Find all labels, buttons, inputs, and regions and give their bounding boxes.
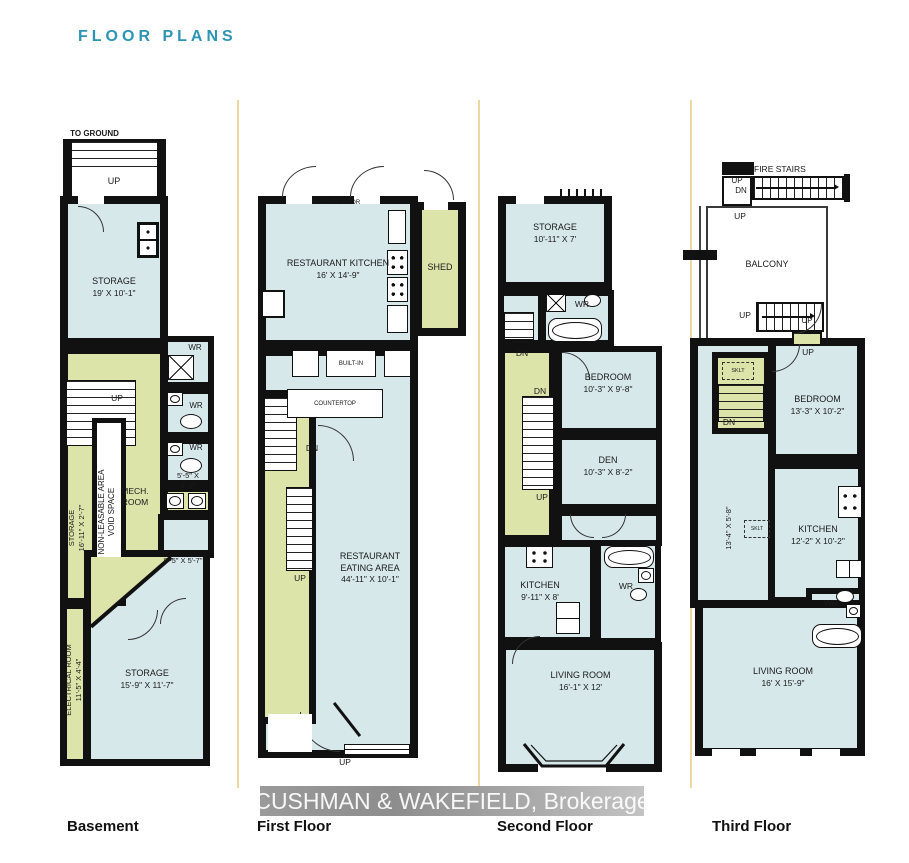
bathtub-icon	[604, 546, 654, 568]
up-door-label: UP	[794, 316, 820, 326]
stairs-arrow	[756, 187, 834, 189]
floor-plans-sheet: FLOOR PLANS TO GROUND UP STORAGE 19' X 1…	[0, 0, 909, 863]
door-gap	[424, 202, 448, 210]
entry-up-label: UP	[332, 757, 358, 768]
stove-icon	[526, 546, 553, 568]
dims-line: 9'-11" X 8'	[504, 592, 576, 603]
door-arc-icon	[350, 166, 384, 197]
window-gap	[516, 196, 544, 204]
stairs-icon	[504, 312, 534, 340]
page-title: FLOOR PLANS	[78, 28, 237, 46]
name-line: RESTAURANT KITCHEN	[278, 258, 398, 270]
balcony-outer-wall	[699, 206, 701, 346]
window-icon	[261, 290, 285, 318]
name-line: RESTAURANT	[322, 551, 418, 563]
door-arc-icon	[282, 166, 316, 197]
dims-line: 16'-11" X 2'-7"	[77, 453, 87, 603]
counter-icon	[836, 560, 862, 578]
balcony-label: BALCONY	[726, 259, 808, 271]
entry-recess	[268, 714, 312, 752]
wr-label: WR	[568, 299, 596, 310]
column-separator-1	[237, 100, 239, 788]
built-in-cabinet: BUILT-IN	[326, 350, 376, 377]
dims-line: 10'-11" X 7'	[505, 234, 605, 245]
shower-icon	[168, 355, 194, 380]
name-line: STORAGE	[64, 276, 164, 288]
dims-line: 16'-1" X 12'	[528, 682, 633, 693]
wr-label: WR	[182, 401, 210, 411]
arrow-head-icon	[834, 184, 839, 190]
dims-line: 16' X 15'-9"	[728, 678, 838, 689]
stair-up-label: UP	[288, 573, 312, 584]
column-separator-2	[478, 100, 480, 788]
non-leasable-label: NON-LEASABLE AREA VOID SPACE	[97, 422, 121, 602]
toilet-icon	[180, 414, 202, 429]
sklt-label: SKLT	[731, 368, 744, 374]
name-line: STORAGE	[67, 453, 77, 603]
shower-icon	[546, 294, 566, 312]
dims-line: 11'-5" X 4'-4"	[74, 605, 84, 755]
name-line: KITCHEN	[778, 524, 858, 536]
sink-icon	[638, 568, 654, 583]
dims-line: 15'-9" X 11'-7"	[97, 680, 197, 691]
fire-stairs-label: FIRE STAIRS	[754, 164, 846, 175]
storage-bottom-label: STORAGE 15'-9" X 11'-7"	[97, 668, 197, 691]
name-line-2: ROOM	[112, 497, 158, 508]
fs-dn-label: DN	[728, 186, 754, 196]
window-gap	[712, 749, 740, 756]
mech-room-label: MECH. ROOM	[112, 486, 158, 508]
burner	[139, 224, 157, 240]
entry-stairwell: UP	[63, 139, 166, 201]
dims-line: 16' X 14'-9"	[278, 270, 398, 281]
sink-icon	[167, 442, 183, 456]
fridge-icon	[556, 602, 580, 634]
blocked-door-label: BLOCKED DOOR	[296, 200, 376, 208]
fs-up-label: UP	[724, 176, 750, 186]
name-line: STORAGE	[505, 222, 605, 234]
skylight-box: SKLT	[722, 362, 754, 380]
name-line-2: EATING AREA	[322, 563, 418, 575]
entry-up-label: UP	[795, 347, 821, 358]
nook-dims-label: 9'-5" X 5'-7"	[153, 556, 213, 566]
built-in-label: BUILT-IN	[339, 361, 363, 367]
first-floor-label: First Floor	[257, 818, 331, 835]
storage-top-label: STORAGE 19' X 10'-1"	[64, 276, 164, 299]
bathtub-icon	[548, 318, 602, 342]
sink-icon	[166, 493, 184, 509]
shed-label: SHED	[410, 262, 470, 274]
stove-icon	[137, 222, 159, 258]
bedroom-label: BEDROOM 10'-3" X 9'-8"	[558, 372, 658, 395]
sklt-label: SKLT	[751, 526, 763, 532]
wall-hatch	[560, 189, 608, 198]
watermark: CUSHMAN & WAKEFIELD, Brokerage	[260, 786, 644, 816]
stairs-icon	[286, 487, 313, 571]
bedroom-label: BEDROOM 13'-3" X 10'-2"	[775, 394, 860, 417]
dims-line: 44'-11" X 10'-1"	[322, 574, 418, 585]
den-label: DEN 10'-3" X 8'-2"	[558, 455, 658, 478]
name-line: NON-LEASABLE AREA	[97, 422, 107, 602]
name-line: DEN	[558, 455, 658, 467]
vanity-dims-label: 5'-5" X 4'-2"	[164, 471, 212, 491]
stair-up-label: UP	[104, 393, 130, 404]
stove-icon	[387, 277, 408, 302]
storage-top-room	[60, 196, 168, 346]
name-line: LIVING ROOM	[528, 670, 633, 682]
dims-line: 5'-5" X	[164, 471, 212, 481]
name-line-2: VOID SPACE	[107, 422, 117, 602]
stair-up-label: UP	[528, 492, 556, 503]
stove-icon	[838, 486, 862, 518]
stair-dn-label: DN	[299, 443, 325, 454]
dims-line: 13'-3" X 10'-2"	[775, 406, 860, 417]
kitchen-label: RESTAURANT KITCHEN 16' X 14'-9"	[278, 258, 398, 281]
wr-label: WR	[182, 443, 210, 453]
stairs-icon	[522, 396, 554, 490]
fridge-icon	[388, 210, 406, 244]
wr-label: WR	[612, 581, 640, 592]
name-line: MECH.	[112, 486, 158, 497]
stair-dn-label: DN	[716, 417, 742, 428]
dims-line-2: 4'-2"	[164, 481, 212, 491]
basement-floor-label: Basement	[67, 818, 139, 835]
stair-up-label: UP	[94, 176, 134, 188]
name-line: ELECTRICAL ROOM	[64, 605, 74, 755]
electrical-label: ELECTRICAL ROOM 11'-5" X 4'-4"	[64, 605, 86, 755]
eating-area-label: RESTAURANT EATING AREA 44'-11" X 10'-1"	[322, 551, 418, 585]
up-below-fs-label: UP	[727, 211, 753, 222]
third-floor-label: Third Floor	[712, 818, 791, 835]
burner	[139, 240, 157, 256]
name-line: KITCHEN	[504, 580, 576, 592]
countertop-label: COUNTERTOP	[314, 401, 356, 407]
skylight-box-2: SKLT	[744, 520, 770, 538]
name-line: LIVING ROOM	[728, 666, 838, 678]
storage-label: STORAGE 10'-11" X 7'	[505, 222, 605, 245]
dims-line: 19' X 10'-1"	[64, 288, 164, 299]
sink-icon	[846, 604, 861, 618]
wr-label: WR	[180, 343, 210, 353]
name-line: BEDROOM	[775, 394, 860, 406]
sink-icon	[167, 392, 183, 406]
door-arc-icon	[424, 170, 454, 200]
second-floor-label: Second Floor	[497, 818, 593, 835]
living-room-label: LIVING ROOM 16' X 15'-9"	[728, 666, 838, 689]
wr-label: WR	[816, 598, 846, 609]
wall-segment	[722, 162, 754, 175]
counter-icon	[387, 305, 408, 333]
stair-up-label: UP	[734, 310, 756, 321]
stair-dn-label: DN	[508, 348, 536, 359]
wall-segment	[844, 174, 850, 202]
wall-segment	[683, 250, 717, 260]
dims-line: 10'-3" X 8'-2"	[558, 467, 658, 478]
bay-window-icon	[522, 742, 626, 770]
bathtub-icon	[812, 624, 862, 648]
kitchen-label: KITCHEN 9'-11" X 8'	[504, 580, 576, 603]
sink-icon	[188, 493, 206, 509]
window-gap	[756, 749, 800, 756]
window-gap	[812, 749, 840, 756]
dims-line: 10'-3" X 9'-8"	[558, 384, 658, 395]
sink-icon	[292, 350, 319, 377]
dims-line: 12'-2" X 10'-2"	[778, 536, 858, 547]
countertop: COUNTERTOP	[287, 389, 383, 418]
counter-icon	[384, 350, 411, 377]
bay-window-icon	[344, 744, 410, 755]
door-gap	[78, 196, 104, 204]
name-line: STORAGE	[97, 668, 197, 680]
living-room-label: LIVING ROOM 16'-1" X 12'	[528, 670, 633, 693]
stairs-icon	[72, 142, 157, 172]
hall-dims-label: 13'-4" X 5'-8"	[724, 468, 738, 588]
kitchen-label: KITCHEN 12'-2" X 10'-2"	[778, 524, 858, 547]
stair-dn-label-2: DN	[526, 386, 554, 397]
name-line: BEDROOM	[558, 372, 658, 384]
to-ground-label: TO GROUND	[57, 129, 132, 139]
storage-strip-label: STORAGE 16'-11" X 2'-7"	[67, 453, 89, 603]
